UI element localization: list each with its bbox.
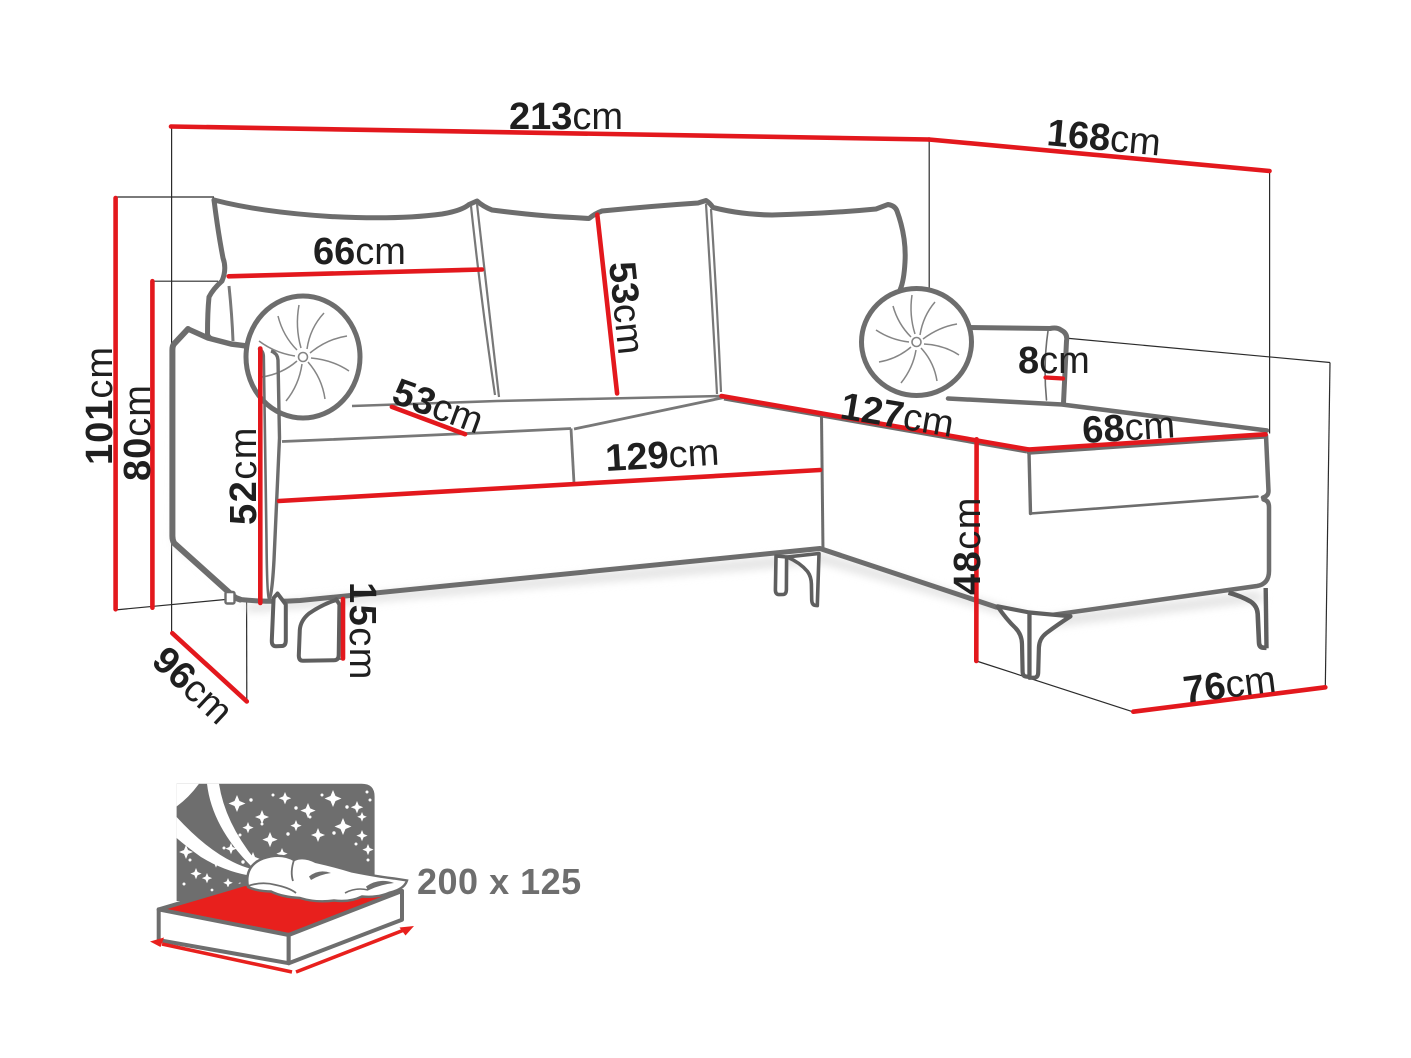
svg-text:8cm: 8cm <box>1018 340 1090 382</box>
svg-text:200 x 125: 200 x 125 <box>417 861 582 902</box>
svg-text:66cm: 66cm <box>313 231 406 273</box>
svg-text:213cm: 213cm <box>509 96 623 138</box>
svg-text:101cm: 101cm <box>79 346 121 465</box>
svg-text:52cm: 52cm <box>223 426 265 525</box>
svg-text:80cm: 80cm <box>117 384 159 481</box>
svg-text:15cm: 15cm <box>341 582 383 681</box>
svg-text:68cm: 68cm <box>1081 404 1176 452</box>
svg-text:129cm: 129cm <box>604 432 720 480</box>
svg-text:48cm: 48cm <box>947 496 989 595</box>
